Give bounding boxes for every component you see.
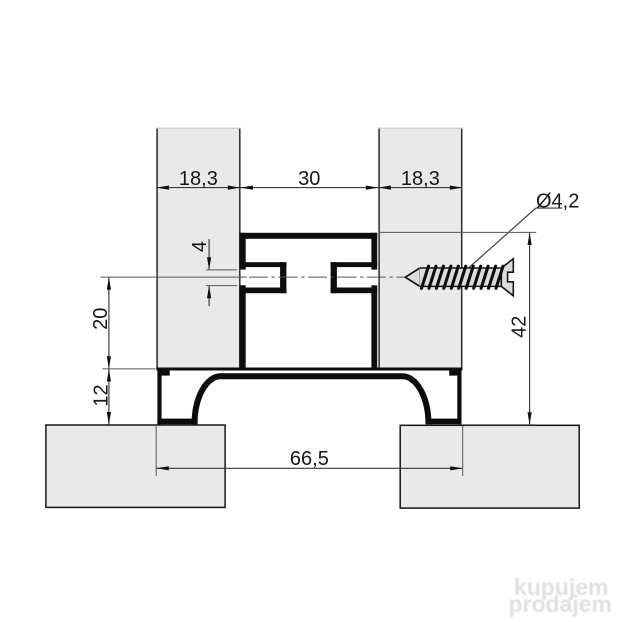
svg-text:prodajem: prodajem bbox=[508, 591, 612, 617]
svg-text:66,5: 66,5 bbox=[290, 448, 329, 470]
svg-text:4: 4 bbox=[189, 241, 211, 252]
svg-text:Ø4,2: Ø4,2 bbox=[536, 190, 579, 212]
svg-text:18,3: 18,3 bbox=[179, 168, 218, 190]
svg-text:42: 42 bbox=[509, 316, 531, 338]
svg-text:30: 30 bbox=[298, 168, 320, 190]
svg-text:20: 20 bbox=[90, 308, 112, 330]
svg-text:18,3: 18,3 bbox=[401, 168, 440, 190]
svg-text:12: 12 bbox=[90, 384, 112, 406]
